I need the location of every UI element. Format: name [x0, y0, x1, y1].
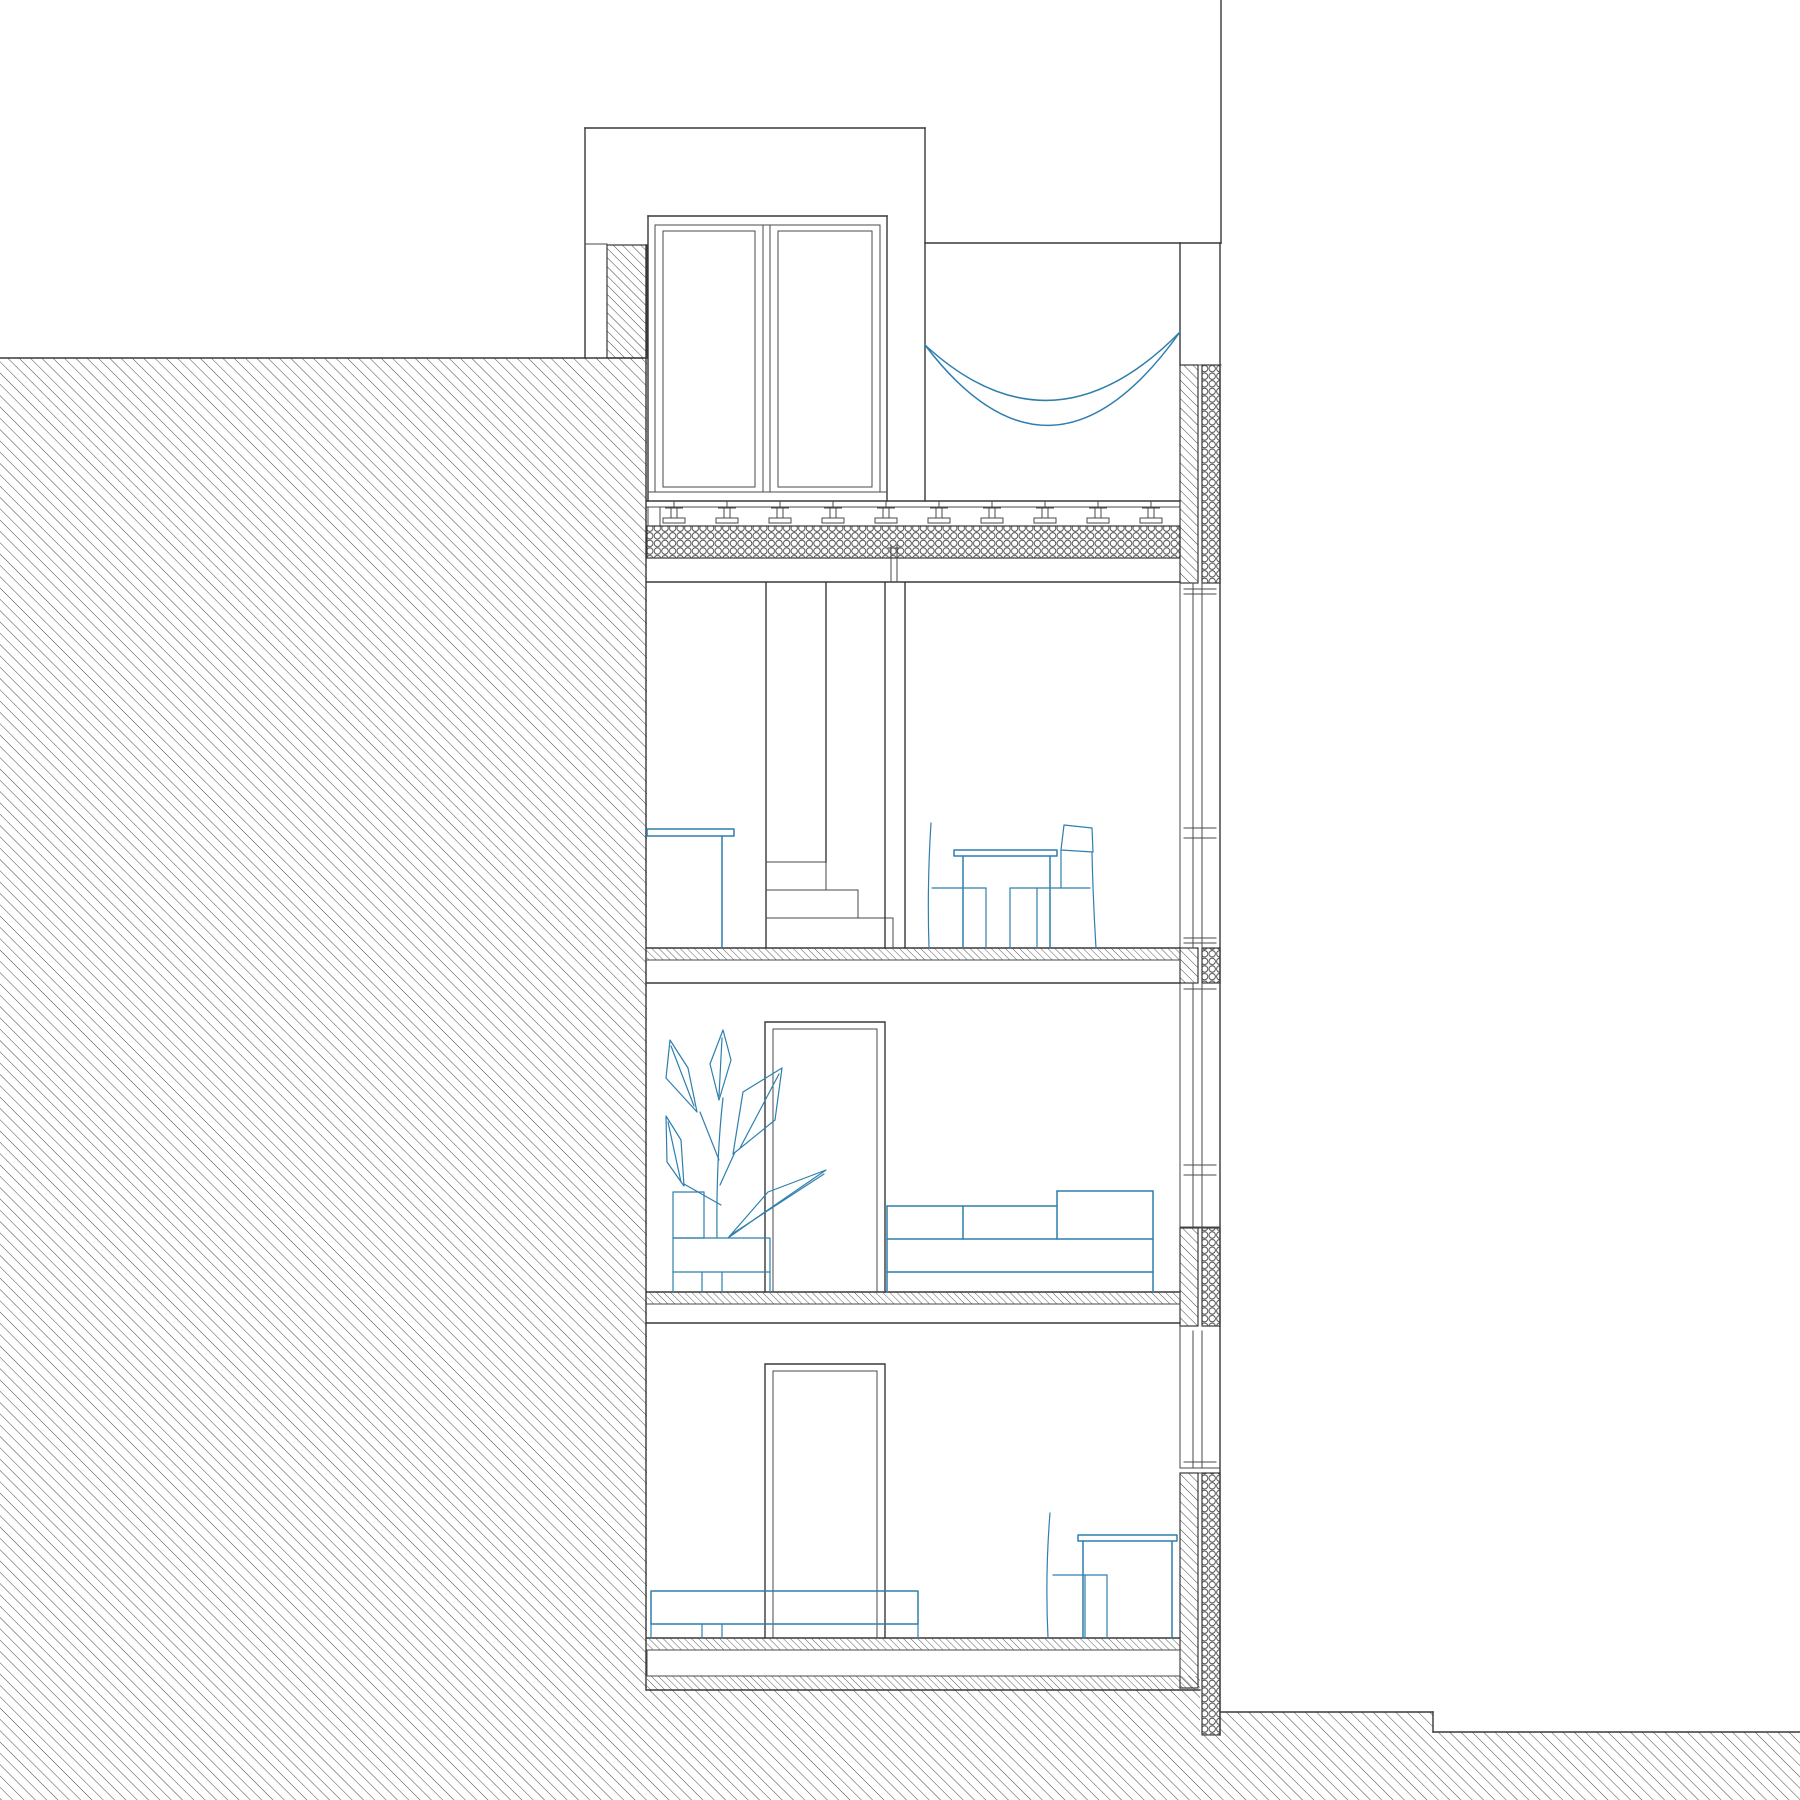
floor-slabs [647, 948, 1200, 1690]
window-lower-floor [1180, 1326, 1220, 1468]
roof-insulation-honeycomb [647, 526, 1180, 558]
penthouse [585, 0, 1221, 1690]
sofa [887, 1191, 1153, 1292]
door-glass-panel-left [663, 231, 755, 487]
earth-right-street [1220, 1712, 1800, 1800]
slab-middle-floor [647, 1292, 1180, 1323]
window-middle-floor [1180, 983, 1220, 1227]
deck-pedestals [663, 501, 1162, 523]
wall-desk [647, 829, 734, 948]
sideboard [651, 1591, 918, 1638]
potted-plant [666, 1030, 826, 1292]
building-section-drawing [0, 0, 1800, 1800]
roof-deck [647, 501, 1180, 582]
hammock [925, 332, 1180, 425]
earth-under-building [647, 1690, 1220, 1800]
ground-slab-insulation [647, 1650, 1180, 1676]
right-facade-wall [1180, 243, 1220, 1735]
lower-floor-room [651, 1364, 1177, 1638]
side-chair [1047, 1513, 1107, 1638]
slab-upper-floor [647, 948, 1180, 983]
ground-earth [0, 358, 1800, 1800]
wall-footing-insulation [1202, 1473, 1220, 1735]
leaf [733, 1068, 782, 1154]
penthouse-glass-door [648, 216, 887, 501]
terrace-right-boundary [925, 0, 1221, 365]
interior-door-lower [765, 1364, 885, 1638]
partition-wall [885, 583, 905, 948]
interior-door-middle [765, 1022, 885, 1292]
staircase [766, 583, 893, 948]
window-upper-floor [1180, 583, 1216, 948]
left-parapet-cut-wall [607, 245, 647, 358]
work-desk [1078, 1535, 1177, 1638]
deck-edge-insulation [648, 507, 660, 526]
earth-left-embankment [0, 358, 647, 1800]
dining-chair-left [928, 823, 986, 948]
dining-table [954, 850, 1057, 948]
slab-ground-floor [647, 1638, 1200, 1690]
section-drawing-canvas [0, 0, 1800, 1800]
middle-floor-room [666, 1022, 1153, 1292]
dining-chair-right [1010, 825, 1096, 948]
door-glass-panel-right [778, 231, 872, 487]
upper-floor-room [647, 583, 1096, 948]
